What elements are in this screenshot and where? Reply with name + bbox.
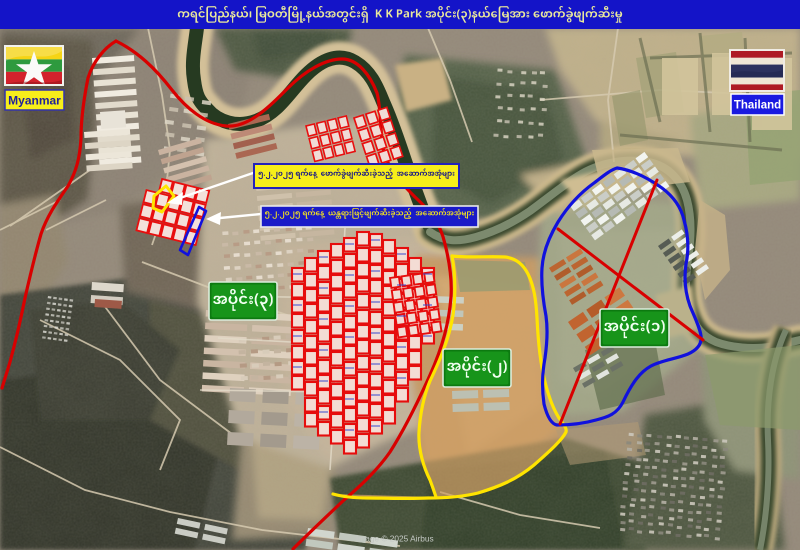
svg-text:Myanmar: Myanmar <box>8 94 61 108</box>
svg-text:Image © 2025 Airbus: Image © 2025 Airbus <box>356 534 434 544</box>
svg-text:Thailand: Thailand <box>734 100 781 112</box>
